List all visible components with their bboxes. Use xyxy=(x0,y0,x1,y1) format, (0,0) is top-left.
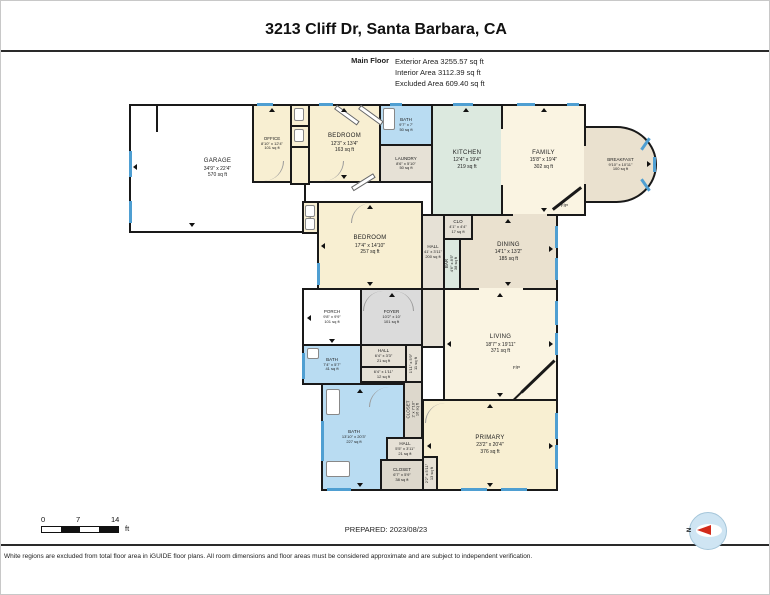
room-clo-kitchen: CLO 4'1" x 4'4" 17 sq ft xyxy=(443,214,473,240)
bar-area: 38 sq ft xyxy=(455,255,460,273)
dining-label: DINING 14'1" x 13'2" 185 sq ft xyxy=(495,242,522,263)
bath-small-area: 41 sq ft xyxy=(323,367,341,372)
hall-small-area: 21 sq ft xyxy=(375,359,393,364)
scale-tick-0: 0 xyxy=(41,515,45,524)
family-area: 302 sq ft xyxy=(530,164,557,171)
window xyxy=(555,226,558,248)
bath-big-area: 227 sq ft xyxy=(342,440,366,445)
dimension-arrow xyxy=(549,443,553,449)
closet-strip-area: 12 sq ft xyxy=(374,375,393,380)
window xyxy=(129,151,132,177)
dimension-arrow xyxy=(329,339,335,343)
closet-tall-area: 16 sq ft xyxy=(416,401,421,419)
dimension-arrow xyxy=(541,108,547,112)
dimension-arrow xyxy=(447,341,451,347)
window xyxy=(257,103,273,106)
living-label: LIVING 18'7" x 19'11" 371 sq ft xyxy=(486,334,516,355)
dining-name: DINING xyxy=(495,242,522,250)
compass-icon: N xyxy=(689,512,727,550)
bath-top-area: 50 sq ft xyxy=(399,128,413,133)
kitchen-area: 219 sq ft xyxy=(453,164,481,171)
dimension-arrow xyxy=(341,175,347,179)
dimension-arrow xyxy=(357,389,363,393)
window xyxy=(453,103,473,106)
clo-kitchen-label: CLO 4'1" x 4'4" 17 sq ft xyxy=(449,219,467,234)
family-fireplace-label: F/P xyxy=(561,203,568,208)
window xyxy=(390,103,402,106)
dimension-arrow xyxy=(497,293,503,297)
hall-bottom-area: 21 sq ft xyxy=(395,452,414,457)
window xyxy=(517,103,535,106)
primary-name: PRIMARY xyxy=(475,435,504,443)
window xyxy=(555,413,558,439)
window xyxy=(501,488,527,491)
breakfast-label: BREAKFAST 9'10" x 10'11" 100 sq ft xyxy=(607,157,634,172)
hall-main-label: HALL 41' x 3'11" 200 sq ft xyxy=(424,244,442,259)
clo-kitchen-area: 17 sq ft xyxy=(449,230,467,235)
bar-label: BAR 4'6" x 8'5" 38 sq ft xyxy=(444,255,459,273)
room-porch: PORCH 9'8" x 9'9" 101 sq ft xyxy=(302,288,362,346)
breakfast-area: 100 sq ft xyxy=(607,167,634,172)
bath-small-label: BATH 7'4" x 5'7" 41 sq ft xyxy=(323,357,341,372)
dimension-arrow xyxy=(357,483,363,487)
sink-fixture-icon xyxy=(305,218,315,230)
kitchen-family-opening xyxy=(501,129,503,185)
footer-divider xyxy=(1,544,770,546)
dimension-arrow xyxy=(367,205,373,209)
hall-bottom-label: HALL 5'5" x 3'11" 21 sq ft xyxy=(395,441,414,456)
garage-label: GARAGE 34'9" x 22'4" 570 sq ft xyxy=(204,158,231,179)
dimension-arrow xyxy=(487,404,493,408)
family-label: FAMILY 15'8" x 19'4" 302 sq ft xyxy=(530,150,557,171)
dimension-arrow xyxy=(269,108,275,112)
room-closet-strip: 6'4" x 1'11" 12 sq ft xyxy=(360,366,407,383)
living-fireplace-label: F/P xyxy=(513,365,520,370)
scale-tick-7: 7 xyxy=(76,515,80,524)
room-wc-lower xyxy=(290,146,310,185)
room-hall-small: HALL 6'4" x 3'3" 21 sq ft xyxy=(360,344,407,368)
laundry-label: LAUNDRY 8'6" x 5'10" 50 sq ft xyxy=(395,156,416,171)
clo-bottom-area: 13 sq ft xyxy=(430,464,435,483)
kitchen-name: KITCHEN xyxy=(453,150,481,158)
bedroom2-name: BEDROOM xyxy=(353,235,386,243)
window xyxy=(319,103,333,106)
toilet-fixture-icon xyxy=(305,205,315,217)
dimension-arrow xyxy=(497,393,503,397)
header-divider xyxy=(1,50,770,52)
room-hall-main: HALL 41' x 3'11" 200 sq ft xyxy=(421,214,445,290)
dimension-arrow xyxy=(463,108,469,112)
living-name: LIVING xyxy=(486,334,516,342)
bedroom1-area: 163 sq ft xyxy=(328,147,361,154)
compass-needle-icon xyxy=(697,525,711,535)
page-title: 3213 Cliff Dr, Santa Barbara, CA xyxy=(1,21,770,39)
office-label: OFFICE 8'10" x 12'4" 101 sq ft xyxy=(261,136,283,151)
foyer-area: 101 sq ft xyxy=(382,320,400,325)
window xyxy=(321,421,324,461)
dining-area: 185 sq ft xyxy=(495,256,522,263)
dimension-arrow xyxy=(487,483,493,487)
closet-bottom-label: CLOSET 6'7" x 5'9" 38 sq ft xyxy=(393,467,411,482)
bedroom2-label: BEDROOM 17'4" x 14'10" 257 sq ft xyxy=(353,235,386,256)
window xyxy=(555,445,558,469)
room-living: LIVING 18'7" x 19'11" 371 sq ft xyxy=(443,288,558,401)
room-bar: BAR 4'6" x 8'5" 38 sq ft xyxy=(443,238,461,290)
vanity-fixture-icon xyxy=(326,389,340,415)
room-dining: DINING 14'1" x 13'2" 185 sq ft xyxy=(459,214,558,290)
living-area: 371 sq ft xyxy=(486,348,516,355)
window xyxy=(302,353,305,379)
sink-fixture-icon xyxy=(294,129,304,142)
porch-label: PORCH 9'8" x 9'9" 101 sq ft xyxy=(323,309,341,324)
room-closet-tall: CLOSET 2' x 7'10" 16 sq ft xyxy=(403,381,423,439)
family-name: FAMILY xyxy=(530,150,557,158)
toilet-fixture-icon xyxy=(294,108,304,121)
dimension-arrow xyxy=(389,293,395,297)
primary-area: 376 sq ft xyxy=(475,449,504,456)
room-family: FAMILY 15'8" x 19'4" 302 sq ft xyxy=(501,104,586,216)
bath-big-label: BATH 13'10" x 20'3" 227 sq ft xyxy=(342,429,366,444)
room-kitchen: KITCHEN 12'4" x 19'4" 219 sq ft xyxy=(431,104,503,216)
dimension-arrow xyxy=(647,161,651,167)
bedroom1-label: BEDROOM 12'3" x 13'4" 163 sq ft xyxy=(328,133,361,154)
area-summary: Exterior Area 3255.57 sq ft Interior Are… xyxy=(395,56,485,89)
closet-tall-label: CLOSET 2' x 7'10" 16 sq ft xyxy=(405,401,420,419)
shower-fixture-icon xyxy=(326,461,350,477)
hall-main-area: 200 sq ft xyxy=(424,255,442,260)
sink-fixture-icon xyxy=(307,348,319,359)
garage-name: GARAGE xyxy=(204,158,231,166)
dimension-arrow xyxy=(505,282,511,286)
garage-wall-stub xyxy=(156,104,158,132)
porch-area: 101 sq ft xyxy=(323,320,341,325)
dimension-arrow xyxy=(189,223,195,227)
interior-area: Interior Area 3112.39 sq ft xyxy=(395,67,485,78)
room-clo-bottom: 2'2" x 5'11" 13 sq ft xyxy=(422,456,438,491)
window xyxy=(327,488,351,491)
dimension-arrow xyxy=(549,246,553,252)
kitchen-label: KITCHEN 12'4" x 19'4" 219 sq ft xyxy=(453,150,481,171)
bedroom1-name: BEDROOM xyxy=(328,133,361,141)
dimension-arrow xyxy=(307,315,311,321)
prepared-date: PREPARED: 2023/08/23 xyxy=(1,525,770,534)
window xyxy=(461,488,487,491)
room-laundry: LAUNDRY 8'6" x 5'10" 50 sq ft xyxy=(379,144,433,183)
room-hall-connector xyxy=(421,288,445,348)
laundry-area: 50 sq ft xyxy=(395,166,416,171)
clo-side-area: 11 sq ft xyxy=(414,354,419,373)
closet-bottom-area: 38 sq ft xyxy=(393,478,411,483)
window xyxy=(555,258,558,280)
closet-strip-label: 6'4" x 1'11" 12 sq ft xyxy=(374,370,393,379)
primary-label: PRIMARY 23'2" x 20'4" 376 sq ft xyxy=(475,435,504,456)
room-closet-bottom: CLOSET 6'7" x 5'9" 38 sq ft xyxy=(380,459,424,491)
disclaimer-text: White regions are excluded from total fl… xyxy=(4,553,768,560)
office-area: 101 sq ft xyxy=(261,146,283,151)
floorplan-page: 3213 Cliff Dr, Santa Barbara, CA Main Fl… xyxy=(0,0,770,595)
tub-fixture-icon xyxy=(383,108,395,130)
exterior-area: Exterior Area 3255.57 sq ft xyxy=(395,56,485,67)
hall-small-label: HALL 6'4" x 3'3" 21 sq ft xyxy=(375,348,393,363)
foyer-label: FOYER 10'2" x 10' 101 sq ft xyxy=(382,309,400,324)
clo-side-label: 1'11" x 5'9" 11 sq ft xyxy=(409,354,418,373)
room-hall-bottom: HALL 5'5" x 3'11" 21 sq ft xyxy=(386,437,424,461)
excluded-area: Excluded Area 609.40 sq ft xyxy=(395,78,485,89)
floor-label: Main Floor xyxy=(289,56,389,65)
window xyxy=(555,333,558,355)
dimension-arrow xyxy=(549,341,553,347)
dining-living-opening xyxy=(479,288,523,290)
window xyxy=(555,301,558,325)
dimension-arrow xyxy=(321,243,325,249)
dimension-arrow xyxy=(341,108,347,112)
window xyxy=(129,201,132,223)
dimension-arrow xyxy=(367,282,373,286)
garage-area: 570 sq ft xyxy=(204,172,231,179)
clo-bottom-label: 2'2" x 5'11" 13 sq ft xyxy=(425,464,434,483)
bath-top-label: BATH 9'7" x 7' 50 sq ft xyxy=(399,117,413,132)
scale-tick-14: 14 xyxy=(111,515,119,524)
family-breakfast-opening xyxy=(584,146,586,184)
window xyxy=(317,263,320,285)
dimension-arrow xyxy=(505,219,511,223)
compass-north-label: N xyxy=(687,528,693,532)
family-dining-opening xyxy=(513,214,547,216)
dimension-arrow xyxy=(133,164,137,170)
bedroom2-area: 257 sq ft xyxy=(353,249,386,256)
dimension-arrow xyxy=(541,208,547,212)
window xyxy=(567,103,579,106)
bay-window xyxy=(653,157,656,172)
dimension-arrow xyxy=(427,443,431,449)
room-clo-side: 1'11" x 5'9" 11 sq ft xyxy=(405,344,423,383)
